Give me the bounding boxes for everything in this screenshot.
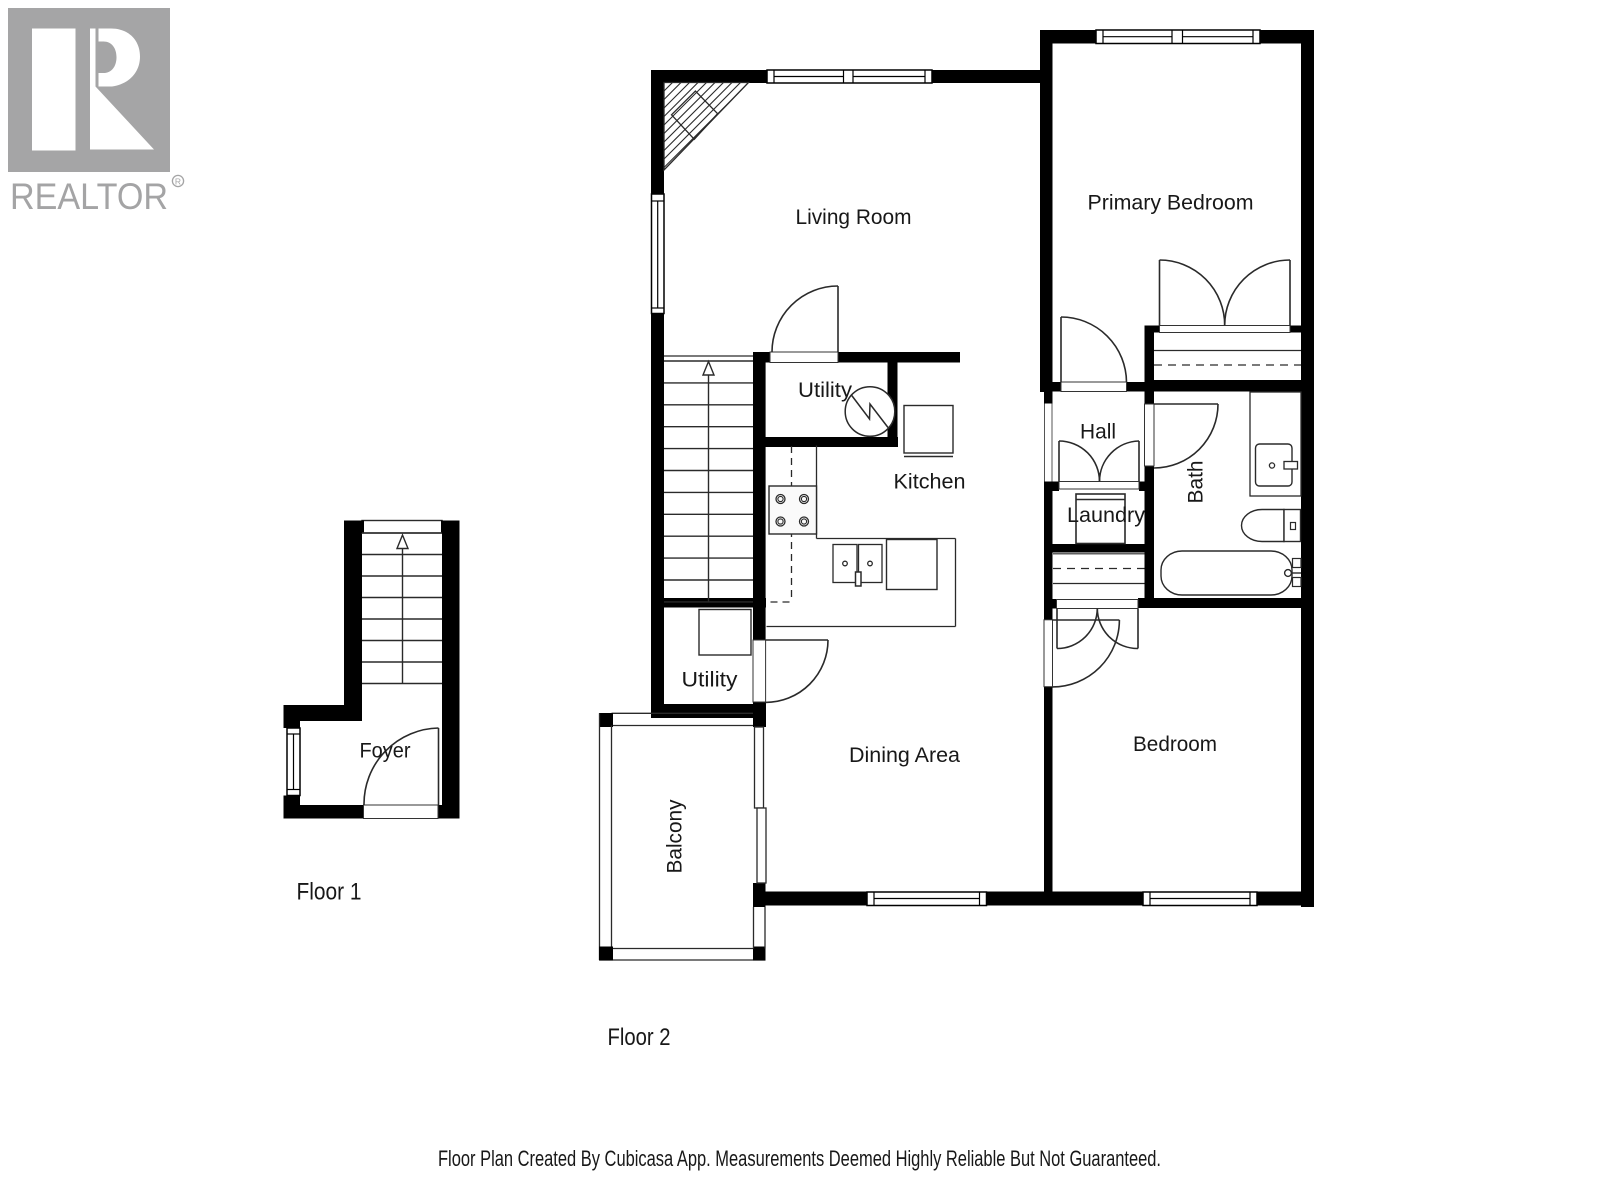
svg-text:Floor Plan Created By Cubicasa: Floor Plan Created By Cubicasa App. Meas… <box>438 1146 1161 1171</box>
svg-text:Balcony: Balcony <box>663 799 687 873</box>
svg-text:Floor 2: Floor 2 <box>608 1024 671 1051</box>
svg-text:Utility: Utility <box>798 378 852 402</box>
svg-text:R: R <box>175 177 181 187</box>
svg-text:REALTOR: REALTOR <box>10 175 168 217</box>
svg-text:Utility: Utility <box>682 668 738 692</box>
svg-text:Foyer: Foyer <box>360 739 411 763</box>
svg-text:Dining Area: Dining Area <box>849 743 960 767</box>
svg-text:Floor 1: Floor 1 <box>297 879 362 906</box>
svg-text:Bath: Bath <box>1184 461 1208 504</box>
svg-text:Laundry: Laundry <box>1067 503 1145 527</box>
svg-text:Primary Bedroom: Primary Bedroom <box>1088 191 1254 215</box>
svg-text:Bedroom: Bedroom <box>1133 732 1217 756</box>
svg-text:Living Room: Living Room <box>796 205 912 229</box>
svg-text:Hall: Hall <box>1080 420 1116 444</box>
svg-text:Kitchen: Kitchen <box>894 470 966 494</box>
